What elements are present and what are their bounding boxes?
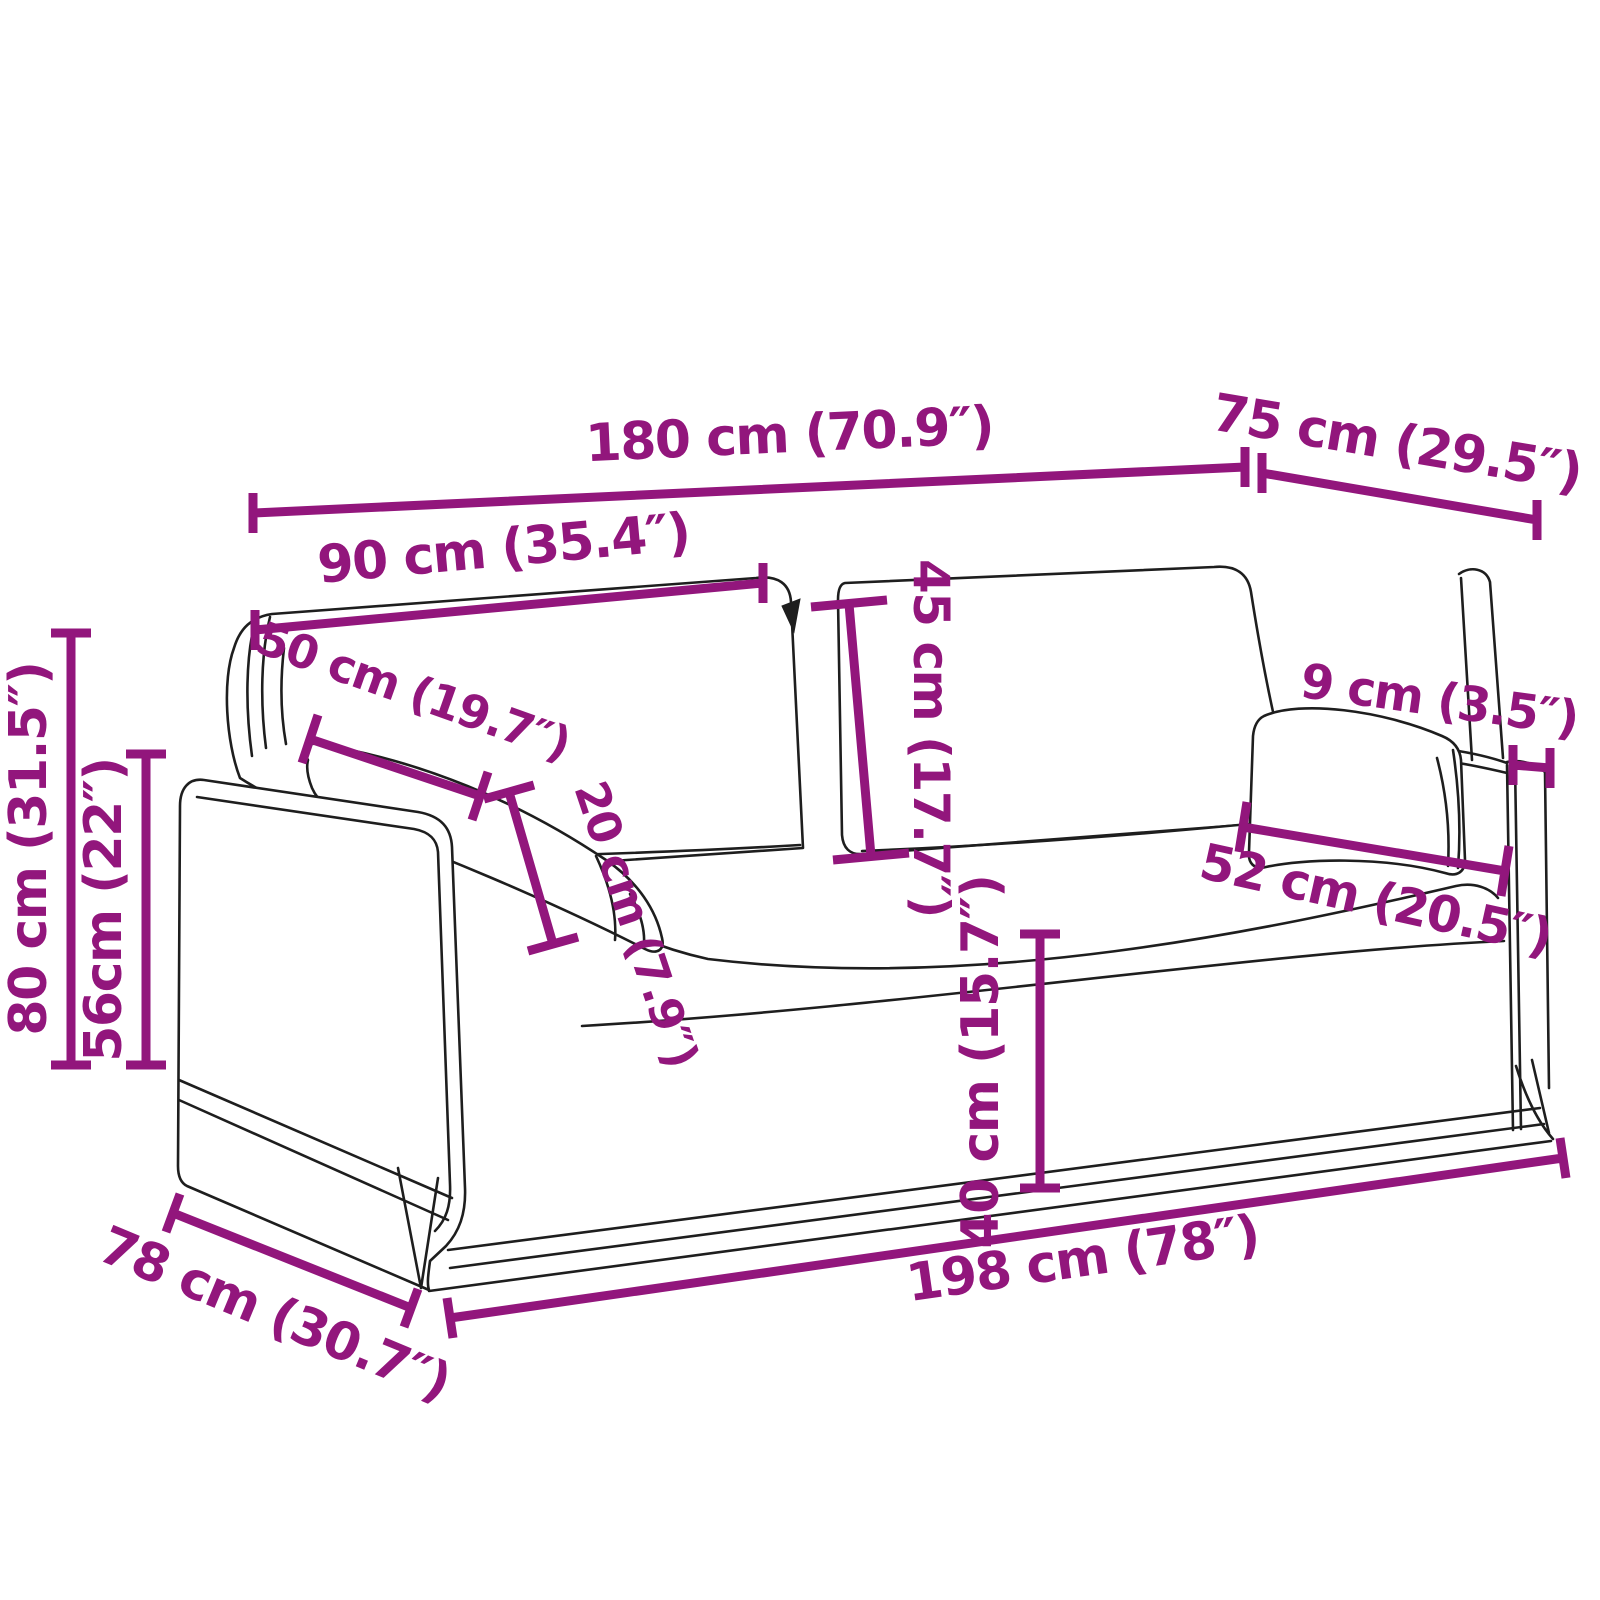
dimension-armrest-height: 56cm (22″)	[74, 754, 166, 1065]
armrest-panel-left	[178, 780, 465, 1290]
dimension-label: 90 cm (35.4″)	[315, 502, 692, 596]
sofa-dimension-diagram: 180 cm (70.9″) 75 cm (29.5″) 90 cm (35.4…	[0, 0, 1600, 1600]
diagram-canvas: 180 cm (70.9″) 75 cm (29.5″) 90 cm (35.4…	[0, 0, 1600, 1600]
dimension-overall-depth-top: 75 cm (29.5″)	[1208, 383, 1586, 540]
dimension-label: 180 cm (70.9″)	[584, 396, 994, 474]
dimension-label: 80 cm (31.5″)	[0, 662, 59, 1035]
dimension-label: 56cm (22″)	[74, 758, 134, 1062]
dimension-overall-width-top: 180 cm (70.9″)	[253, 396, 1245, 533]
dimension-label: 40 cm (15.7″)	[951, 875, 1011, 1248]
dimension-label: 45 cm (17.7″)	[902, 559, 960, 917]
